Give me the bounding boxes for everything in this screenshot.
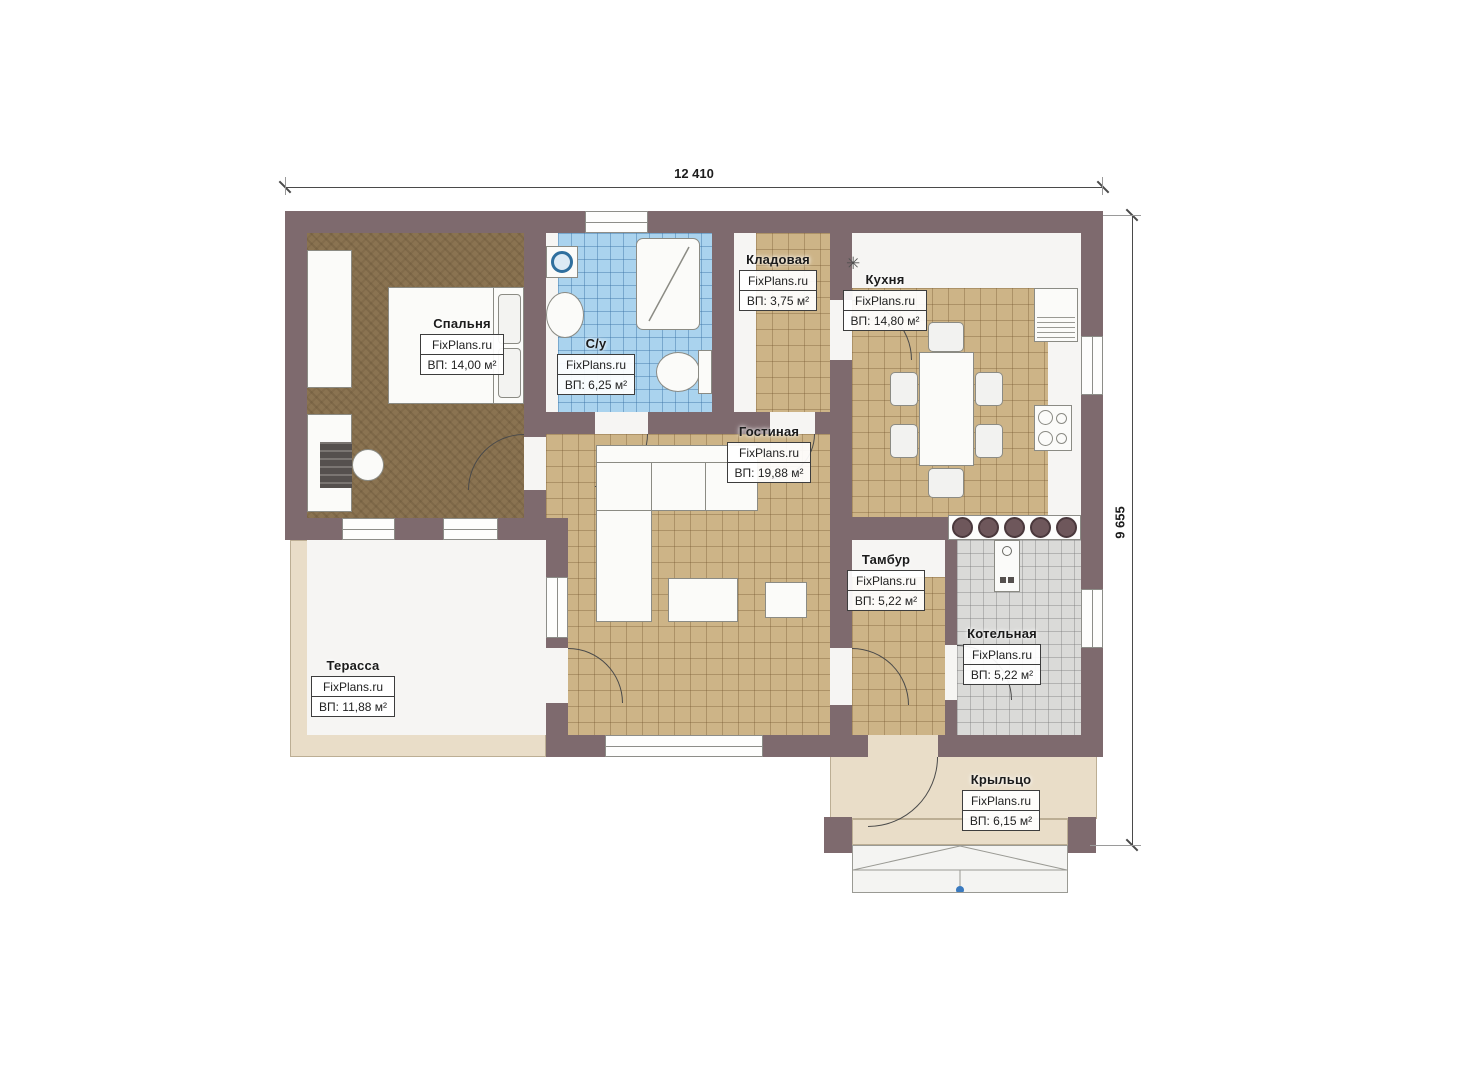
steps-markings	[853, 846, 1067, 892]
watermark: FixPlans.ru	[844, 291, 927, 311]
burner-icon	[1030, 517, 1051, 538]
burner-icon	[1038, 410, 1053, 425]
watermark: FixPlans.ru	[421, 335, 504, 355]
room-name: Котельная	[950, 626, 1054, 641]
room-name: Тамбур	[843, 552, 929, 567]
dimension-line-right	[1132, 215, 1133, 845]
shower-cabin	[636, 238, 700, 330]
light-symbol-icon: ✳	[846, 254, 860, 274]
fridge	[1034, 288, 1078, 342]
washing-machine	[546, 246, 578, 278]
dining-table	[919, 352, 974, 466]
boiler-switch	[1008, 577, 1014, 583]
room-info-box: FixPlans.ru ВП: 6,25 м²	[557, 354, 635, 395]
desk-chair	[352, 449, 384, 481]
wall-left	[285, 211, 307, 540]
burner-icon	[1056, 433, 1067, 444]
door-opening	[546, 648, 568, 703]
watermark: FixPlans.ru	[848, 571, 924, 591]
room-name: Терасса	[300, 658, 406, 673]
boiler-unit	[994, 540, 1020, 592]
window	[443, 518, 498, 540]
boiler-switch	[1000, 577, 1006, 583]
watermark: FixPlans.ru	[558, 355, 634, 375]
burner-icon	[1038, 431, 1053, 446]
washer-drum-icon	[551, 251, 573, 273]
door-opening	[595, 412, 648, 434]
door-opening	[524, 437, 546, 490]
window	[342, 518, 395, 540]
window	[585, 211, 648, 233]
room-info-box: FixPlans.ru ВП: 6,15 м²	[962, 790, 1040, 831]
watermark: FixPlans.ru	[963, 791, 1039, 811]
room-name: Кладовая	[722, 252, 834, 267]
porch-steps	[852, 845, 1068, 893]
room-area: ВП: 11,88 м²	[312, 697, 394, 716]
sofa-cushion-divider	[651, 462, 652, 511]
window	[1081, 336, 1103, 395]
window	[1081, 589, 1103, 648]
porch-post-right	[1068, 817, 1096, 853]
burner-icon	[1056, 517, 1077, 538]
room-name: С/у	[550, 336, 642, 351]
room-area: ВП: 14,80 м²	[844, 311, 927, 330]
wall-bedroom-bath	[524, 211, 546, 540]
dimension-width-label: 12 410	[285, 166, 1103, 181]
watermark: FixPlans.ru	[728, 443, 811, 463]
extension-line	[1103, 215, 1141, 216]
room-area: ВП: 3,75 м²	[740, 291, 816, 310]
room-label-terrace: Терасса FixPlans.ru ВП: 11,88 м²	[300, 658, 406, 717]
sofa-cushion-divider	[705, 462, 706, 511]
fridge-grill	[1037, 317, 1075, 339]
step-marker-dot	[956, 886, 964, 892]
dimension-height-label: 9 655	[1113, 493, 1128, 553]
toilet-bowl	[656, 352, 700, 392]
floor-plan: ✳ Спальня FixPlans.ru ВП: 14,00 м² С/у	[0, 0, 1474, 1080]
porch-post-left	[824, 817, 852, 853]
room-info-box: FixPlans.ru ВП: 5,22 м²	[847, 570, 925, 611]
room-info-box: FixPlans.ru ВП: 19,88 м²	[727, 442, 812, 483]
toilet-tank	[698, 350, 712, 394]
side-table	[765, 582, 807, 618]
wardrobe	[307, 250, 352, 388]
door-opening	[868, 735, 938, 757]
watermark: FixPlans.ru	[312, 677, 394, 697]
room-info-box: FixPlans.ru ВП: 3,75 м²	[739, 270, 817, 311]
room-info-box: FixPlans.ru ВП: 11,88 м²	[311, 676, 395, 717]
window	[605, 735, 763, 757]
dining-chair	[975, 424, 1003, 458]
room-label-vestibule: Тамбур FixPlans.ru ВП: 5,22 м²	[843, 552, 929, 611]
window	[546, 577, 568, 638]
dining-chair	[928, 468, 964, 498]
door-opening	[830, 648, 852, 705]
boiler-gauge-icon	[1002, 546, 1012, 556]
watermark: FixPlans.ru	[964, 645, 1040, 665]
room-info-box: FixPlans.ru ВП: 14,00 м²	[420, 334, 505, 375]
room-name: Крыльцо	[950, 772, 1052, 787]
room-area: ВП: 14,00 м²	[421, 355, 504, 374]
room-label-storage: Кладовая FixPlans.ru ВП: 3,75 м²	[722, 252, 834, 311]
room-label-bedroom: Спальня FixPlans.ru ВП: 14,00 м²	[410, 316, 514, 375]
dining-chair	[975, 372, 1003, 406]
room-area: ВП: 6,25 м²	[558, 375, 634, 394]
room-name: Гостиная	[714, 424, 824, 439]
desk	[320, 442, 352, 488]
stove	[1034, 405, 1072, 451]
burner-icon	[952, 517, 973, 538]
room-name: Кухня	[836, 272, 934, 287]
room-label-kitchen: Кухня FixPlans.ru ВП: 14,80 м²	[836, 272, 934, 331]
room-info-box: FixPlans.ru ВП: 5,22 м²	[963, 644, 1041, 685]
burner-icon	[978, 517, 999, 538]
room-name: Спальня	[410, 316, 514, 331]
watermark: FixPlans.ru	[740, 271, 816, 291]
burner-icon	[1056, 413, 1067, 424]
coffee-table	[668, 578, 738, 622]
dining-chair	[890, 372, 918, 406]
room-label-living-room: Гостиная FixPlans.ru ВП: 19,88 м²	[714, 424, 824, 483]
room-info-box: FixPlans.ru ВП: 14,80 м²	[843, 290, 928, 331]
room-area: ВП: 5,22 м²	[964, 665, 1040, 684]
room-area: ВП: 5,22 м²	[848, 591, 924, 610]
counter-strip	[948, 515, 1081, 540]
dining-chair	[890, 424, 918, 458]
room-area: ВП: 19,88 м²	[728, 463, 811, 482]
burner-icon	[1004, 517, 1025, 538]
wall-right	[1081, 211, 1103, 757]
shower-glass-line	[637, 239, 699, 329]
extension-line	[1090, 845, 1141, 846]
room-label-boiler-room: Котельная FixPlans.ru ВП: 5,22 м²	[950, 626, 1054, 685]
room-label-bathroom: С/у FixPlans.ru ВП: 6,25 м²	[550, 336, 642, 395]
room-area: ВП: 6,15 м²	[963, 811, 1039, 830]
wall-top	[285, 211, 1103, 233]
bathroom-sink	[546, 292, 584, 338]
dimension-line-top	[285, 187, 1103, 188]
room-label-porch: Крыльцо FixPlans.ru ВП: 6,15 м²	[950, 772, 1052, 831]
